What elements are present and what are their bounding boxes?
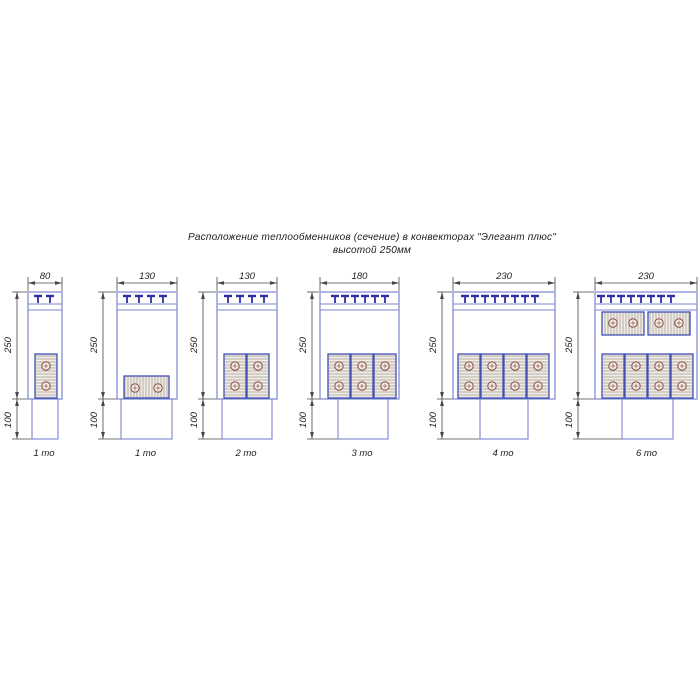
convector-drawing-3: 1302501002 то [189,271,277,459]
height-dimension-label: 250 [564,336,575,354]
heat-exchanger-block [35,354,57,398]
dimension-arrow [690,281,697,285]
dimension-arrow [15,432,19,439]
dimension-arrow [201,292,205,299]
dimension-arrow [217,281,224,285]
air-duct [222,399,272,439]
heat-exchanger-block [648,354,670,398]
heat-exchanger-block [671,354,693,398]
base-dimension-label: 100 [3,411,14,428]
heat-exchanger-block [504,354,526,398]
height-dimension-label: 250 [89,336,100,354]
base-dimension-label: 100 [564,411,575,428]
dimension-arrow [440,399,444,406]
heat-exchanger-block [247,354,269,398]
dimension-arrow [270,281,277,285]
dimension-arrow [310,392,314,399]
dimension-arrow [320,281,327,285]
dimension-arrow [170,281,177,285]
drawing-caption: 2 то [234,448,256,459]
air-duct [32,399,58,439]
drawing-caption: 4 то [492,448,513,459]
dimension-arrow [15,292,19,299]
heat-exchanger-block [458,354,480,398]
height-dimension-label: 250 [3,336,14,354]
heat-exchanger-block [527,354,549,398]
width-dimension-label: 130 [239,271,256,282]
heat-exchanger-block [351,354,373,398]
width-dimension-label: 80 [40,271,51,282]
dimension-arrow [440,392,444,399]
width-dimension-label: 180 [352,271,369,282]
base-dimension-label: 100 [298,411,309,428]
dimension-arrow [201,432,205,439]
air-duct [622,399,673,439]
base-dimension-label: 100 [428,411,439,428]
dimension-arrow [201,392,205,399]
heat-exchanger-block [374,354,396,398]
dimension-arrow [101,432,105,439]
convector-drawing-2: 1302501001 то [89,271,177,459]
drawing-sheet: Расположение теплообменников (сечение) в… [0,0,700,700]
dimension-arrow [201,399,205,406]
width-dimension-label: 230 [495,271,513,282]
dimension-arrow [576,399,580,406]
dimension-arrow [101,292,105,299]
dimension-arrow [576,432,580,439]
convector-drawing-6: 2302501006 то [564,271,697,459]
convector-drawing-5: 2302501004 то [428,271,555,459]
dimension-arrow [310,292,314,299]
convector-cross-sections: 802501001 то1302501001 то1302501002 то18… [0,0,700,700]
dimension-arrow [117,281,124,285]
dimension-arrow [101,392,105,399]
dimension-arrow [453,281,460,285]
dimension-arrow [310,432,314,439]
dimension-arrow [576,292,580,299]
heat-exchanger-block [602,354,624,398]
heat-exchanger-block [328,354,350,398]
dimension-arrow [392,281,399,285]
dimension-arrow [101,399,105,406]
width-dimension-label: 230 [637,271,655,282]
heat-exchanger-block [224,354,246,398]
dimension-arrow [548,281,555,285]
air-duct [121,399,172,439]
air-duct [338,399,388,439]
dimension-arrow [15,399,19,406]
heat-exchanger-block [481,354,503,398]
height-dimension-label: 250 [189,336,200,354]
base-dimension-label: 100 [189,411,200,428]
drawing-caption: 1 то [33,448,54,459]
dimension-arrow [595,281,602,285]
width-dimension-label: 130 [139,271,156,282]
dimension-arrow [440,292,444,299]
dimension-arrow [440,432,444,439]
dimension-arrow [55,281,62,285]
dimension-arrow [28,281,35,285]
base-dimension-label: 100 [89,411,100,428]
drawing-caption: 3 то [351,448,372,459]
convector-drawing-1: 802501001 то [3,271,62,459]
dimension-arrow [15,392,19,399]
air-duct [480,399,528,439]
drawing-caption: 6 то [636,448,657,459]
height-dimension-label: 250 [298,336,309,354]
drawing-caption: 1 то [135,448,156,459]
convector-drawing-4: 1802501003 то [298,271,399,459]
height-dimension-label: 250 [428,336,439,354]
heat-exchanger-block [625,354,647,398]
dimension-arrow [310,399,314,406]
dimension-arrow [576,392,580,399]
